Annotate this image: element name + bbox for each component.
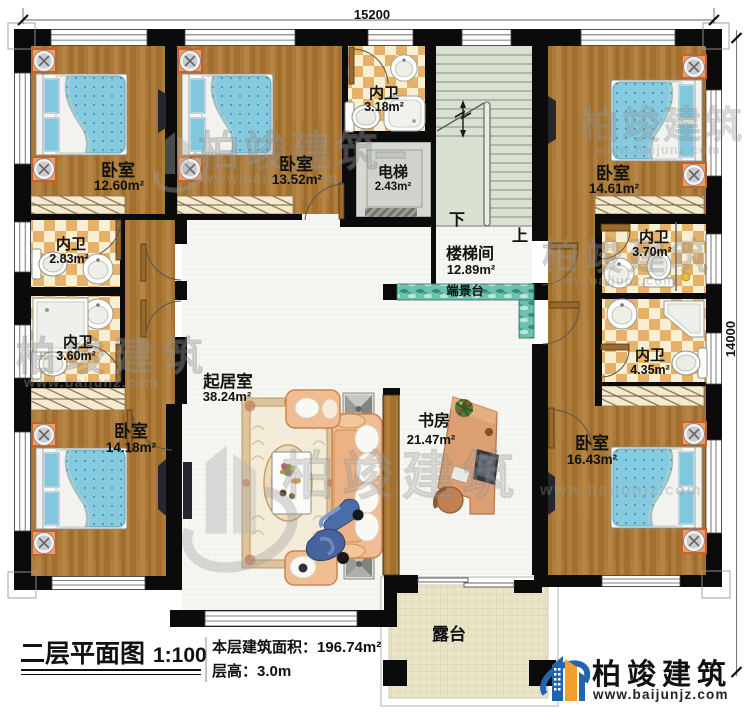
- svg-text:起居室: 起居室: [202, 371, 253, 391]
- svg-text:2.43m²: 2.43m²: [375, 181, 412, 193]
- svg-text:书房: 书房: [418, 411, 450, 430]
- svg-text:www.baijunjz.com: www.baijunjz.com: [592, 687, 729, 702]
- svg-text:www.baijunz.com: www.baijunz.com: [551, 273, 676, 288]
- svg-text:内卫: 内卫: [56, 235, 86, 253]
- svg-text:柏竣建筑: 柏竣建筑: [542, 235, 714, 277]
- svg-text:露台: 露台: [432, 624, 466, 644]
- svg-text:柏竣建筑: 柏竣建筑: [592, 657, 732, 691]
- svg-text:卧室: 卧室: [114, 421, 148, 441]
- svg-text:柏竣建筑: 柏竣建筑: [581, 105, 745, 147]
- svg-text:15200: 15200: [354, 7, 390, 22]
- svg-text:14.61m²: 14.61m²: [589, 181, 640, 196]
- svg-text:卧室: 卧室: [575, 433, 609, 453]
- svg-text:14000: 14000: [723, 321, 738, 357]
- svg-text:楼梯间: 楼梯间: [446, 244, 494, 263]
- svg-text:二层平面图: 二层平面图: [20, 640, 145, 668]
- svg-text:内卫: 内卫: [635, 346, 665, 364]
- svg-text:16.43m²: 16.43m²: [567, 452, 618, 467]
- svg-text:下: 下: [449, 212, 465, 229]
- svg-text:2.83m²: 2.83m²: [49, 252, 89, 266]
- svg-text:本层建筑面积：196.74m²: 本层建筑面积：196.74m²: [212, 638, 381, 656]
- svg-text:层高：3.0m: 层高：3.0m: [212, 662, 291, 680]
- svg-text:端景台: 端景台: [446, 283, 484, 298]
- svg-text:www.baijunz.com: www.baijunz.com: [596, 142, 721, 157]
- svg-text:www.baijunjz.com: www.baijunjz.com: [539, 482, 702, 499]
- svg-text:内卫: 内卫: [639, 228, 669, 246]
- svg-text:卧室: 卧室: [101, 160, 135, 180]
- svg-text:上: 上: [512, 227, 528, 245]
- svg-text:4.35m²: 4.35m²: [630, 363, 670, 377]
- svg-text:电梯: 电梯: [378, 163, 408, 181]
- svg-text:21.47m²: 21.47m²: [407, 432, 456, 447]
- svg-text:12.60m²: 12.60m²: [94, 178, 145, 193]
- svg-text:1:100: 1:100: [153, 644, 207, 667]
- svg-text:卧室: 卧室: [596, 163, 630, 183]
- svg-text:14.18m²: 14.18m²: [106, 440, 157, 455]
- svg-text:13.52m²: 13.52m²: [272, 172, 323, 187]
- svg-text:柏竣建筑: 柏竣建筑: [282, 448, 522, 506]
- svg-text:卧室: 卧室: [279, 154, 313, 174]
- svg-text:3.70m²: 3.70m²: [632, 245, 672, 259]
- svg-text:12.89m²: 12.89m²: [447, 262, 496, 277]
- svg-text:www.baijunz.com: www.baijunz.com: [23, 374, 159, 390]
- svg-text:3.18m²: 3.18m²: [364, 100, 404, 114]
- svg-text:3.60m²: 3.60m²: [56, 349, 96, 363]
- svg-text:柏竣建筑: 柏竣建筑: [16, 335, 212, 379]
- svg-text:38.24m²: 38.24m²: [203, 389, 252, 404]
